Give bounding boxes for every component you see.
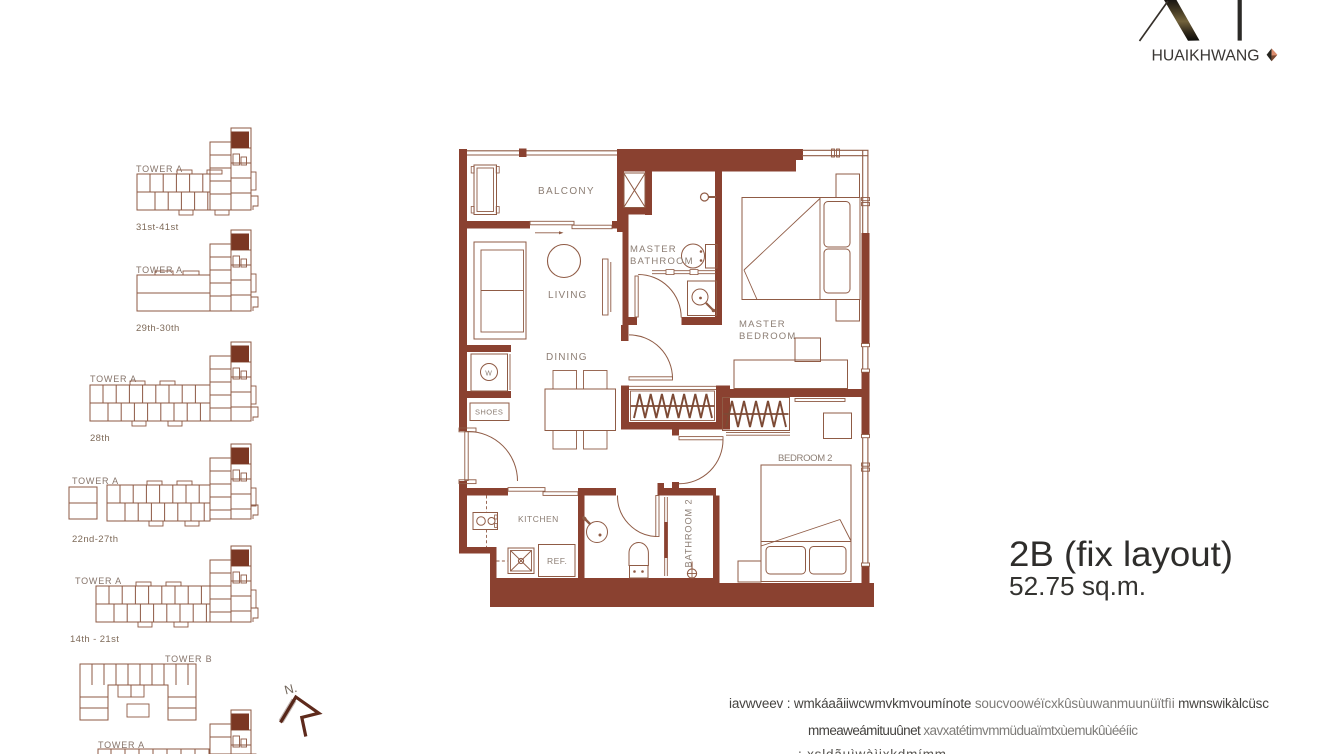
svg-text:BATHROOM 2: BATHROOM 2	[684, 498, 694, 567]
svg-text:MASTER: MASTER	[739, 319, 786, 330]
svg-text:mmeaweámituuûnet xavxatétimvmm: mmeaweámituuûnet xavxatétimvmmüduaïmtxùe…	[808, 723, 1138, 738]
svg-text:31st-41st: 31st-41st	[136, 222, 179, 233]
svg-text:TOWER A: TOWER A	[136, 265, 183, 275]
svg-text:22nd-27th: 22nd-27th	[72, 534, 118, 545]
svg-text:29th-30th: 29th-30th	[136, 323, 180, 334]
svg-text:KITCHEN: KITCHEN	[518, 514, 559, 524]
svg-text:: xsldãuìwàìixkdmímm: : xsldãuìwàìixkdmímm	[798, 747, 946, 754]
svg-text:BEDROOM: BEDROOM	[739, 331, 797, 342]
svg-text:BEDROOM 2: BEDROOM 2	[778, 453, 833, 464]
svg-text:28th: 28th	[90, 433, 110, 444]
svg-text:TOWER A: TOWER A	[75, 576, 122, 586]
svg-text:W: W	[485, 371, 492, 378]
svg-text:MASTER: MASTER	[630, 244, 677, 255]
svg-text:52.75 sq.m.: 52.75 sq.m.	[1009, 573, 1146, 601]
svg-text:SHOES: SHOES	[475, 408, 503, 417]
svg-text:TOWER A: TOWER A	[136, 164, 183, 174]
svg-text:TOWER B: TOWER B	[165, 654, 212, 664]
svg-text:DINING: DINING	[546, 352, 588, 363]
svg-text:BATHROOM: BATHROOM	[630, 256, 694, 267]
svg-text:BALCONY: BALCONY	[538, 186, 595, 197]
svg-text:2B (fix layout): 2B (fix layout)	[1009, 534, 1233, 574]
svg-text:HUAIKHWANG: HUAIKHWANG	[1152, 48, 1260, 65]
svg-text:14th - 21st: 14th - 21st	[70, 634, 119, 645]
svg-text:REF.: REF.	[547, 556, 567, 566]
svg-text:iavwveev : wmkáaãiiwcwmvkmvoum: iavwveev : wmkáaãiiwcwmvkmvoumínote souc…	[729, 696, 1269, 711]
svg-text:LIVING: LIVING	[548, 290, 587, 301]
